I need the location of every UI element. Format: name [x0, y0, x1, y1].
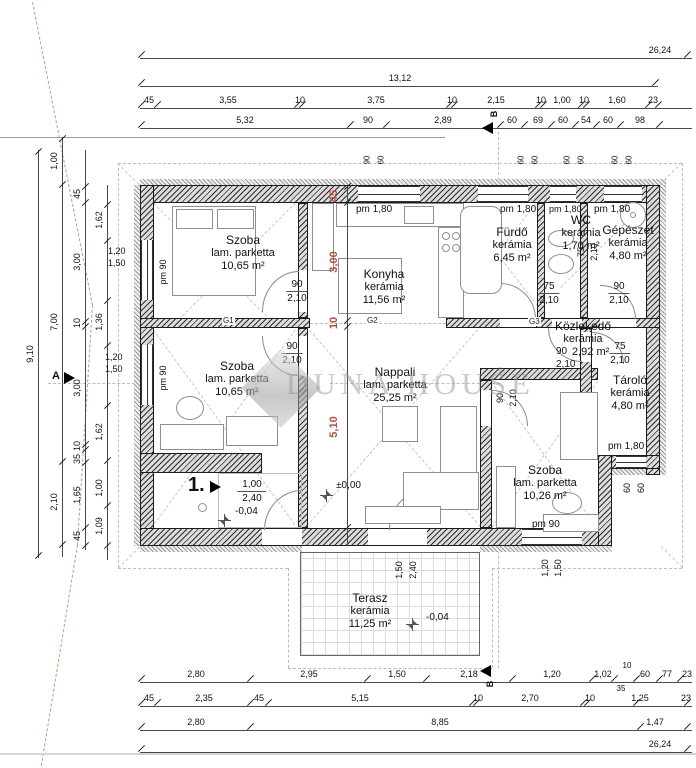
- door-size: 2,40: [408, 561, 418, 579]
- tick: [247, 699, 254, 706]
- tick: [364, 675, 371, 682]
- dim-label: 1,65: [72, 486, 82, 504]
- dim-label: 2,10: [49, 493, 59, 511]
- tick: [423, 675, 430, 682]
- wall-insulation: [480, 546, 612, 552]
- roof-overhang: [682, 163, 683, 568]
- coffee-table: [382, 406, 418, 442]
- roof-overhang: [118, 568, 288, 569]
- dim-label: 60: [563, 156, 572, 165]
- window: [616, 456, 646, 468]
- door-size: 2,10: [556, 359, 575, 370]
- dim-label: 2,35: [195, 693, 213, 703]
- dim-label: 90: [363, 156, 372, 165]
- tick: [265, 699, 272, 706]
- door-opening: [368, 529, 427, 545]
- exterior-wall-bedroom-right: [598, 455, 612, 546]
- tick: [656, 121, 663, 128]
- window: [604, 186, 642, 202]
- dim-label: 1,62: [94, 423, 104, 441]
- tick: [138, 79, 145, 86]
- section-marker-b-label: B: [489, 111, 499, 118]
- room-label-kitchen: Konyhakerámia11,56 m²: [363, 268, 406, 307]
- dim-line: [62, 137, 63, 557]
- section-line-b: [498, 132, 499, 185]
- tv-bench: [365, 506, 441, 524]
- door-size: 75: [576, 247, 586, 257]
- dim-line: [140, 86, 658, 87]
- tick: [154, 699, 161, 706]
- entry-number: 1.: [188, 474, 205, 497]
- dim-label: 3,75: [367, 95, 385, 105]
- stove-burner: [452, 244, 460, 252]
- door-arc: [500, 283, 536, 319]
- dim-label: 2,70: [521, 693, 539, 703]
- level-marker-icon: [218, 514, 231, 527]
- section-marker-b-label: B: [485, 681, 495, 688]
- window-sill-label: pm 1,80: [549, 204, 582, 214]
- dim-label: 54: [581, 115, 591, 125]
- section-marker-b-arrow: [480, 665, 491, 677]
- porch-post: [198, 503, 207, 512]
- dim-label: 3,00: [72, 253, 82, 271]
- dim-label-red: 3,00: [328, 251, 340, 272]
- window: [358, 186, 420, 202]
- dim-label: 60: [603, 115, 613, 125]
- tick: [509, 675, 516, 682]
- tick: [383, 121, 390, 128]
- room-label-bathroom: Fürdőkerámia6,45 m²: [492, 226, 531, 265]
- dim-label: 60: [558, 115, 568, 125]
- window-sill-label: pm 1,80: [500, 204, 536, 215]
- dim-label: 60: [377, 156, 386, 165]
- tick: [611, 675, 618, 682]
- window-dim: 1,50: [553, 559, 563, 577]
- door-opening: [262, 529, 302, 545]
- roof-overhang: [288, 568, 289, 668]
- dim-label: 45: [72, 531, 82, 541]
- desk: [160, 424, 224, 450]
- dim-label: 10: [295, 95, 305, 105]
- tick: [684, 51, 691, 58]
- lot-boundary-segment: [41, 545, 78, 766]
- beam-label-g3: G3: [528, 317, 541, 326]
- dim-label-red: 45: [328, 190, 340, 202]
- dim-label: 2,89: [434, 115, 452, 125]
- dim-line: [85, 150, 86, 550]
- roof-hip-line: [117, 163, 139, 185]
- tick: [617, 121, 624, 128]
- dim-label: 2,80: [187, 669, 205, 679]
- dim-label-red: 10: [328, 317, 340, 329]
- tick: [521, 121, 528, 128]
- dim-label: 45: [144, 95, 154, 105]
- kitchen-sink: [404, 206, 434, 224]
- door-size: 752,10: [609, 340, 630, 367]
- room-area-hallway: 2,92 m²: [572, 346, 609, 358]
- dim-label: 2,18: [460, 669, 478, 679]
- dim-label: 1,00: [553, 95, 571, 105]
- tick: [684, 723, 691, 730]
- window-sill-label: pm 1,80: [594, 204, 630, 215]
- dim-label: 23: [682, 669, 692, 679]
- site-line: [0, 137, 445, 138]
- window-dim: 1,50: [105, 364, 123, 374]
- room-label-mechanical: Gépészetkerámia4,80 m²: [602, 224, 653, 263]
- window: [550, 186, 576, 202]
- dim-label: 10: [72, 318, 82, 328]
- stove-burner: [452, 232, 460, 240]
- dim-line: [38, 150, 39, 558]
- dim-label: 8,85: [431, 717, 449, 727]
- dim-label: 1,09: [94, 517, 104, 535]
- wardrobe: [226, 416, 278, 446]
- tick: [138, 723, 145, 730]
- stove-burner: [442, 232, 450, 240]
- room-label-bedroom-1: Szobalam. parketta10,65 m²: [211, 234, 275, 273]
- level-label-minus: -0,04: [426, 612, 449, 623]
- dim-label: 1,47: [646, 717, 664, 727]
- door-size: 902,10: [608, 280, 629, 307]
- toilet: [548, 254, 574, 274]
- dim-label: 1,02: [594, 669, 612, 679]
- dim-label: 10: [72, 441, 82, 451]
- wall-insulation: [140, 546, 302, 552]
- window-sill-label: pm 90: [532, 519, 560, 530]
- wall-insulation: [660, 185, 666, 475]
- roof-overhang: [492, 568, 682, 569]
- dim-line: [140, 128, 692, 129]
- room-label-hallway: Közlekedőkerámia: [555, 320, 611, 346]
- room-label-storage: Tárolókerámia4,80 m²: [610, 374, 649, 413]
- sofa: [403, 472, 479, 510]
- dim-label: 60: [640, 669, 650, 679]
- room-label-terrace: Teraszkerámia11,25 m²: [349, 592, 392, 631]
- dim-label: 10: [447, 95, 457, 105]
- dim-label: 1,50: [388, 669, 406, 679]
- roof-overhang: [118, 163, 682, 164]
- tick: [138, 675, 145, 682]
- dim-label: 10: [623, 661, 632, 670]
- tick: [633, 675, 640, 682]
- window: [478, 186, 528, 202]
- stove-burner: [442, 244, 450, 252]
- tick: [572, 121, 579, 128]
- dim-label: 45: [72, 189, 82, 199]
- roof-hip-line: [118, 547, 140, 569]
- window-sill-label: pm 90: [158, 259, 168, 284]
- window-sill-label: pm 90: [158, 365, 168, 390]
- door-size: 902,10: [286, 278, 307, 305]
- window: [141, 345, 153, 405]
- level-marker-icon: [406, 618, 419, 631]
- chair: [176, 396, 204, 420]
- exterior-wall-bottom-left: [140, 453, 262, 473]
- door-size: 2,10: [589, 243, 599, 261]
- dim-label: 13,12: [389, 73, 412, 83]
- tick: [497, 121, 504, 128]
- window: [141, 240, 153, 300]
- section-marker-a-label: A: [52, 370, 60, 382]
- dim-label: 60: [636, 483, 646, 493]
- dim-label: 1,20: [543, 669, 561, 679]
- section-marker-b-arrow: [482, 122, 493, 134]
- door-size: 752,10: [538, 280, 559, 307]
- door-size: 1,50: [394, 561, 404, 579]
- dim-label: 10: [579, 95, 589, 105]
- dim-label: 10: [473, 693, 483, 703]
- dim-label: 60: [611, 156, 620, 165]
- tick: [652, 79, 659, 86]
- dim-line: [140, 706, 692, 707]
- door-size: 90: [556, 346, 567, 357]
- dim-label: 5,32: [236, 115, 254, 125]
- dim-label: 2,95: [300, 669, 318, 679]
- dim-label: 69: [533, 115, 543, 125]
- level-label-minus: -0,04: [235, 506, 258, 517]
- dim-label: 7,00: [49, 313, 59, 331]
- section-line-b: [498, 546, 499, 668]
- dim-label: 90: [363, 115, 373, 125]
- entry-arrow: [210, 481, 221, 493]
- dim-label: 23: [648, 95, 658, 105]
- dim-label: 60: [622, 483, 632, 493]
- dim-label: 35: [617, 684, 626, 693]
- dim-label: 77: [662, 669, 672, 679]
- dim-label: 1,60: [608, 95, 626, 105]
- dim-label: 2,15: [487, 95, 505, 105]
- dim-line: [140, 108, 692, 109]
- dim-label: 45: [254, 693, 264, 703]
- dim-label: 60: [625, 156, 634, 165]
- dim-label: 1,62: [94, 211, 104, 229]
- dim-label: 26,24: [649, 739, 672, 749]
- tick: [247, 675, 254, 682]
- dim-label-red: 5,10: [328, 416, 340, 437]
- dim-label: 10: [585, 693, 595, 703]
- dim-label: 3,55: [219, 95, 237, 105]
- dim-label: 1,00: [49, 152, 59, 170]
- dim-label: 5,15: [351, 693, 369, 703]
- window-dim: 1,20: [540, 559, 550, 577]
- dim-label: 10: [536, 95, 546, 105]
- dim-label: 1,00: [94, 479, 104, 497]
- page-bottom-rule: [0, 753, 696, 755]
- beam-label-g2: G2: [366, 316, 379, 325]
- dim-label: 60: [507, 115, 517, 125]
- level-label-zero: ±0,00: [336, 480, 361, 491]
- room-label-bedroom-3: Szobalam. parketta10,26 m²: [513, 464, 577, 503]
- dim-label: 60: [517, 156, 526, 165]
- dim-label: 9,10: [25, 345, 35, 363]
- tick: [138, 121, 145, 128]
- level-marker-icon: [320, 489, 333, 502]
- tick: [154, 101, 161, 108]
- tick: [138, 745, 145, 752]
- dim-label: 45: [144, 693, 154, 703]
- tick: [247, 723, 254, 730]
- tick: [138, 51, 145, 58]
- bed: [560, 392, 598, 460]
- tick: [637, 723, 644, 730]
- window-dim: 1,50: [108, 258, 126, 268]
- section-marker-a-arrow: [64, 372, 75, 384]
- boiler-core: [630, 212, 636, 218]
- floor-plan-canvas: 26,24 13,12 45 3,55 10 3,75 10 2,15 10 1…: [0, 0, 696, 768]
- pillow: [176, 209, 213, 229]
- tick: [347, 121, 354, 128]
- pillow: [217, 209, 254, 229]
- tick: [684, 745, 691, 752]
- dim-label: 1,25: [631, 693, 649, 703]
- dim-label: 60: [531, 156, 540, 165]
- dim-label: 23: [681, 693, 691, 703]
- dim-line: [140, 752, 692, 753]
- window-sill-label: pm 1,80: [356, 204, 392, 215]
- roof-hip-line: [661, 546, 683, 568]
- door-size: 1,002,40: [237, 478, 266, 505]
- window-sill-label: pm 1,80: [608, 441, 644, 452]
- window-dim: 1,20: [108, 246, 126, 256]
- dim-label: 26,24: [649, 45, 672, 55]
- dim-label: 2,80: [187, 717, 205, 727]
- dim-label: 35: [72, 454, 82, 464]
- dim-line: [140, 682, 692, 683]
- dim-label: 60: [577, 156, 586, 165]
- dim-label: 98: [635, 115, 645, 125]
- roof-overhang: [492, 568, 493, 668]
- dim-label: 1,36: [94, 313, 104, 331]
- dunahouse-watermark-reg: ®: [496, 364, 505, 379]
- dim-line: [140, 730, 692, 731]
- tick: [548, 121, 555, 128]
- beam-label-g1: G1: [222, 316, 235, 325]
- window-dim: 1,20: [105, 352, 123, 362]
- dim-line: [140, 58, 692, 59]
- tick: [593, 121, 600, 128]
